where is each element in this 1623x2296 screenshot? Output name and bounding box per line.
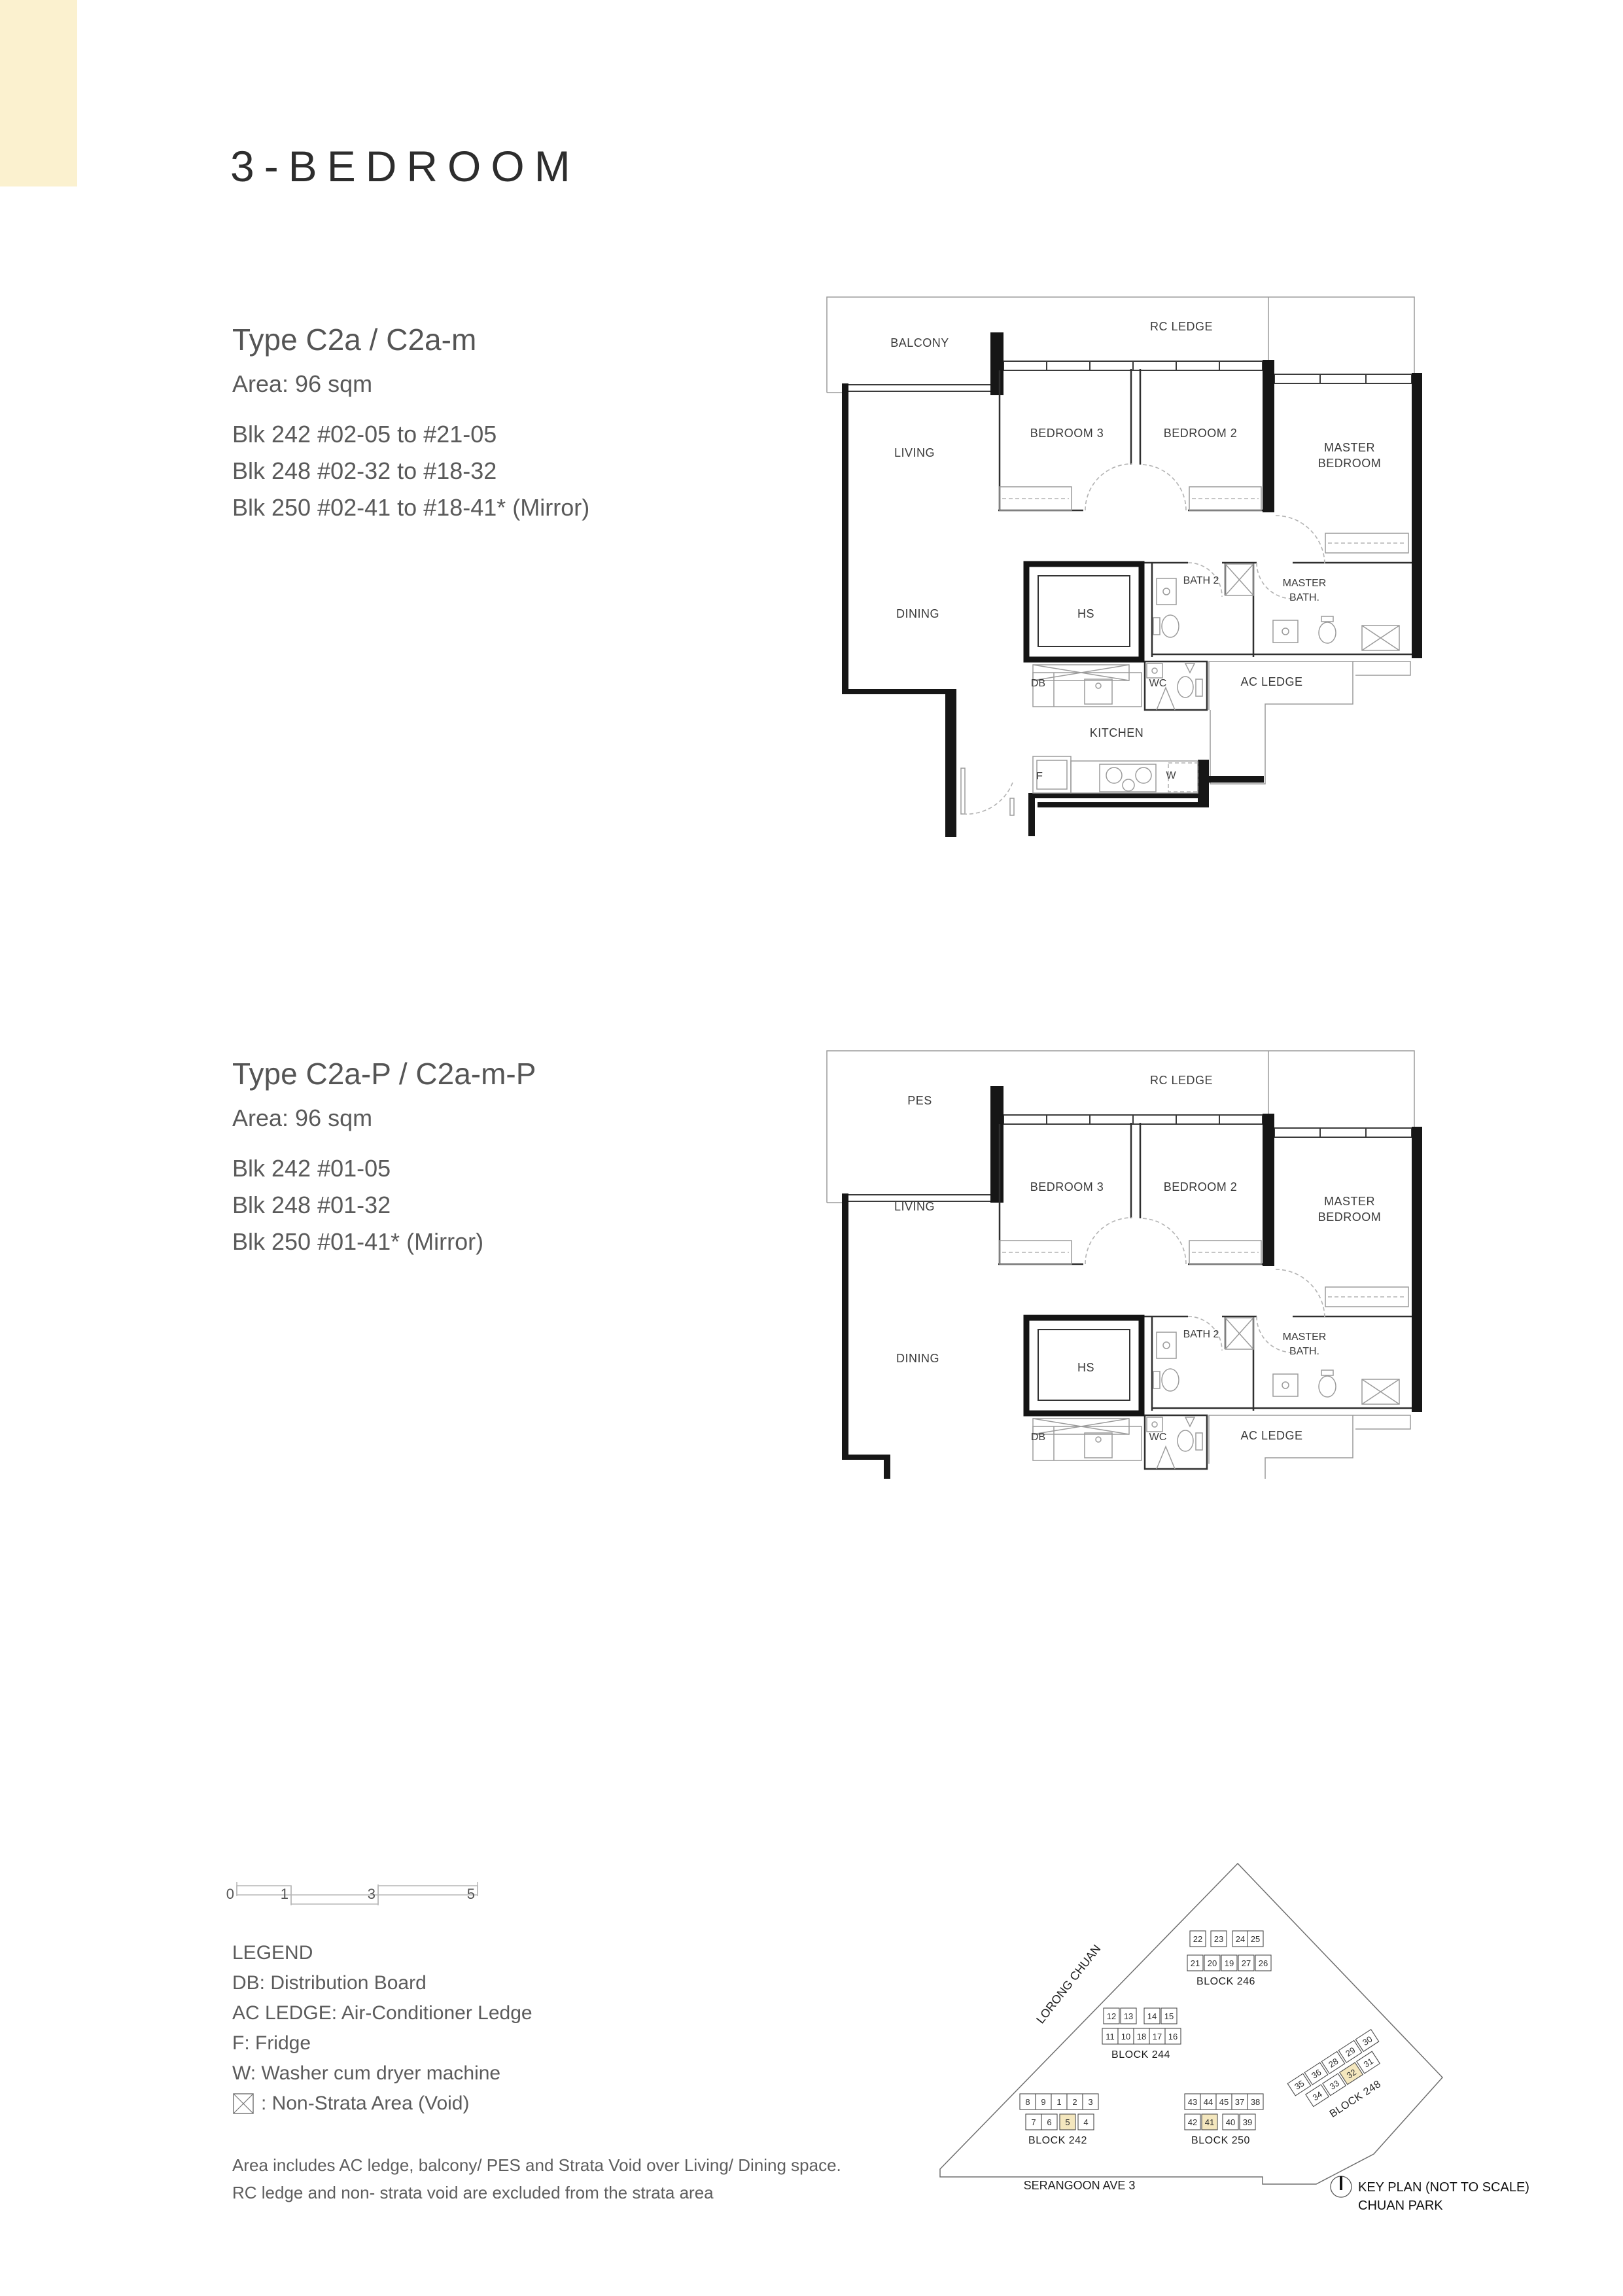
room-label-ac-ledge: AC LEDGE <box>1240 675 1302 688</box>
keyplan-block-246: 22 23 24 25 21 20 19 27 26 BLOCK 246 <box>1187 1931 1271 1987</box>
brochure-page: 3-BEDROOM Type C2a / C2a-m Area: 96 sqm … <box>0 0 1623 2296</box>
keyplan-block-242: 8 9 1 2 3 7 6 5 4 BLOCK 242 <box>1020 2094 1098 2146</box>
room-label-master-bedroom: BEDROOM <box>1318 457 1382 470</box>
room-label-db: DB <box>1031 678 1045 689</box>
room-label-rc-ledge: RC LEDGE <box>1150 320 1213 333</box>
unit-number: 4 <box>1083 2117 1088 2127</box>
unit-number: 38 <box>1251 2097 1260 2107</box>
footnote-line: Area includes AC ledge, balcony/ PES and… <box>232 2151 926 2179</box>
legend-item: F: Fridge <box>232 2028 532 2058</box>
plan1-windows <box>848 361 1412 391</box>
unit-number: 8 <box>1025 2097 1030 2107</box>
keyplan-block-248: 35 36 28 29 30 34 33 32 31 BLOCK 248 <box>1287 2030 1401 2130</box>
room-label-bedroom3: BEDROOM 3 <box>1030 427 1104 440</box>
floorplan-type-c2a: BALCONY RC LEDGE BEDROOM 3 BEDROOM 2 MAS… <box>822 293 1423 849</box>
scale-label-0: 0 <box>226 1886 234 1902</box>
room-label-master-bath: BATH. <box>1289 1346 1319 1357</box>
room-label-washer: W <box>1166 770 1176 781</box>
unit-type-1-block-line: Blk 250 #02-41 to #18-41* (Mirror) <box>232 489 589 526</box>
unit-number: 37 <box>1235 2097 1244 2107</box>
plan2-interior-walls <box>998 1123 1412 1469</box>
non-strata-void-icon <box>232 2093 254 2115</box>
unit-number: 23 <box>1214 1934 1223 1944</box>
unit-number-highlighted: 41 <box>1205 2117 1214 2127</box>
unit-number: 17 <box>1153 2032 1162 2041</box>
unit-number: 45 <box>1219 2097 1229 2107</box>
room-label-ac-ledge: AC LEDGE <box>1240 1429 1302 1442</box>
unit-number: 12 <box>1107 2011 1116 2021</box>
unit-number: 21 <box>1191 1958 1200 1968</box>
unit-type-2-block-line: Blk 242 #01-05 <box>232 1150 536 1187</box>
scale-label-3: 3 <box>368 1886 375 1902</box>
room-label-master-bedroom: MASTER <box>1324 1195 1375 1208</box>
room-label-hs: HS <box>1077 1361 1094 1374</box>
room-label-balcony: BALCONY <box>890 336 949 349</box>
area-footnote: Area includes AC ledge, balcony/ PES and… <box>232 2151 926 2206</box>
unit-number: 9 <box>1041 2097 1045 2107</box>
unit-type-2-title: Type C2a-P / C2a-m-P <box>232 1056 536 1091</box>
unit-number: 7 <box>1031 2117 1036 2127</box>
room-label-wc: WC <box>1149 678 1167 689</box>
room-label-dining: DINING <box>896 607 939 620</box>
unit-type-2-area: Area: 96 sqm <box>232 1104 536 1132</box>
keyplan-project-name: CHUAN PARK <box>1358 2199 1443 2213</box>
room-label-fridge: F <box>1036 771 1043 782</box>
unit-number: 1 <box>1056 2097 1061 2107</box>
street-label-serangoon-ave-3: SERANGOON AVE 3 <box>1024 2179 1136 2192</box>
plan2-walls <box>842 1086 1422 1479</box>
unit-number: 24 <box>1236 1934 1245 1944</box>
scale-label-1: 1 <box>281 1886 288 1902</box>
room-label-master-bath: BATH. <box>1289 592 1319 603</box>
unit-type-1-title: Type C2a / C2a-m <box>232 322 589 357</box>
keyplan-block-250: 43 44 45 37 38 42 41 40 39 BLOCK 250 <box>1185 2094 1263 2146</box>
block-label: BLOCK 242 <box>1028 2135 1087 2146</box>
legend-title: LEGEND <box>232 1938 532 1968</box>
unit-type-2-block-line: Blk 248 #01-32 <box>232 1187 536 1224</box>
unit-number: 18 <box>1137 2032 1146 2041</box>
room-label-kitchen: KITCHEN <box>1090 726 1144 739</box>
unit-number: 39 <box>1243 2117 1252 2127</box>
room-label-master-bedroom: BEDROOM <box>1318 1210 1382 1224</box>
unit-number: 40 <box>1226 2117 1235 2127</box>
room-label-rc-ledge: RC LEDGE <box>1150 1074 1213 1087</box>
legend: LEGEND DB: Distribution Board AC LEDGE: … <box>232 1938 532 2119</box>
unit-number: 43 <box>1188 2097 1197 2107</box>
scale-bar: 0 1 3 5 <box>222 1870 497 1916</box>
block-label: BLOCK 250 <box>1191 2135 1250 2146</box>
footnote-line: RC ledge and non- strata void are exclud… <box>232 2179 926 2206</box>
legend-item-void: : Non-Strata Area (Void) <box>232 2089 532 2119</box>
legend-void-label: : Non-Strata Area (Void) <box>261 2089 470 2119</box>
unit-type-1-block-line: Blk 242 #02-05 to #21-05 <box>232 416 589 453</box>
room-label-pes: PES <box>907 1094 932 1107</box>
scale-label-5: 5 <box>467 1886 475 1902</box>
room-label-dining: DINING <box>896 1352 939 1365</box>
unit-type-1-info: Type C2a / C2a-m Area: 96 sqm Blk 242 #0… <box>232 322 589 526</box>
unit-number: 25 <box>1251 1934 1260 1944</box>
room-label-wc: WC <box>1149 1432 1167 1443</box>
unit-type-2-info: Type C2a-P / C2a-m-P Area: 96 sqm Blk 24… <box>232 1056 536 1260</box>
room-label-master-bath: MASTER <box>1283 578 1327 589</box>
unit-number: 11 <box>1106 2032 1115 2041</box>
page-title: 3-BEDROOM <box>230 141 580 191</box>
unit-number: 2 <box>1072 2097 1077 2107</box>
unit-number: 19 <box>1225 1958 1234 1968</box>
block-label: BLOCK 244 <box>1111 2049 1170 2060</box>
unit-number: 44 <box>1204 2097 1213 2107</box>
unit-number: 16 <box>1168 2032 1178 2041</box>
unit-number: 6 <box>1047 2117 1051 2127</box>
room-label-master-bath: MASTER <box>1283 1332 1327 1343</box>
street-label-lorong-chuan: LORONG CHUAN <box>1034 1942 1103 2026</box>
room-label-hs: HS <box>1077 607 1094 620</box>
room-label-bath2: BATH 2 <box>1183 575 1219 586</box>
unit-number-highlighted: 5 <box>1065 2117 1070 2127</box>
room-label-bedroom2: BEDROOM 2 <box>1164 1180 1238 1193</box>
unit-number: 15 <box>1164 2011 1174 2021</box>
corner-accent-swatch <box>0 0 77 186</box>
room-label-bedroom3: BEDROOM 3 <box>1030 1180 1104 1193</box>
north-arrow-icon <box>1331 2176 1352 2197</box>
unit-type-2-block-line: Blk 250 #01-41* (Mirror) <box>232 1224 536 1260</box>
unit-type-1-block-line: Blk 248 #02-32 to #18-32 <box>232 453 589 489</box>
block-label: BLOCK 246 <box>1196 1976 1255 1987</box>
unit-number: 10 <box>1121 2032 1130 2041</box>
room-label-bedroom2: BEDROOM 2 <box>1164 427 1238 440</box>
plan1-room-labels: BALCONY RC LEDGE BEDROOM 3 BEDROOM 2 MAS… <box>890 320 1381 782</box>
legend-item: DB: Distribution Board <box>232 1968 532 1998</box>
legend-item: AC LEDGE: Air-Conditioner Ledge <box>232 1998 532 2028</box>
unit-number: 14 <box>1147 2011 1157 2021</box>
unit-number: 27 <box>1242 1958 1251 1968</box>
unit-number: 13 <box>1124 2011 1133 2021</box>
keyplan-caption: KEY PLAN (NOT TO SCALE) <box>1358 2180 1529 2195</box>
unit-number: 20 <box>1208 1958 1217 1968</box>
room-label-living: LIVING <box>894 1200 935 1213</box>
room-label-living: LIVING <box>894 446 935 459</box>
room-label-db: DB <box>1031 1432 1045 1443</box>
legend-item: W: Washer cum dryer machine <box>232 2058 532 2089</box>
unit-type-1-area: Area: 96 sqm <box>232 370 589 398</box>
room-label-master-bedroom: MASTER <box>1324 441 1375 454</box>
unit-number: 26 <box>1259 1958 1268 1968</box>
unit-number: 22 <box>1193 1934 1202 1944</box>
keyplan-block-244: 12 13 14 15 11 10 18 17 16 BLOCK 244 <box>1102 2008 1181 2060</box>
room-label-bath2: BATH 2 <box>1183 1329 1219 1340</box>
plan2-windows <box>848 1115 1412 1201</box>
key-plan: LORONG CHUAN SERANGOON AVE 3 22 23 24 25… <box>916 1852 1505 2231</box>
floorplan-type-c2a-p: PES RC LEDGE BEDROOM 3 BEDROOM 2 MASTER … <box>822 1047 1423 1498</box>
unit-number: 3 <box>1088 2097 1092 2107</box>
unit-number: 42 <box>1188 2117 1197 2127</box>
